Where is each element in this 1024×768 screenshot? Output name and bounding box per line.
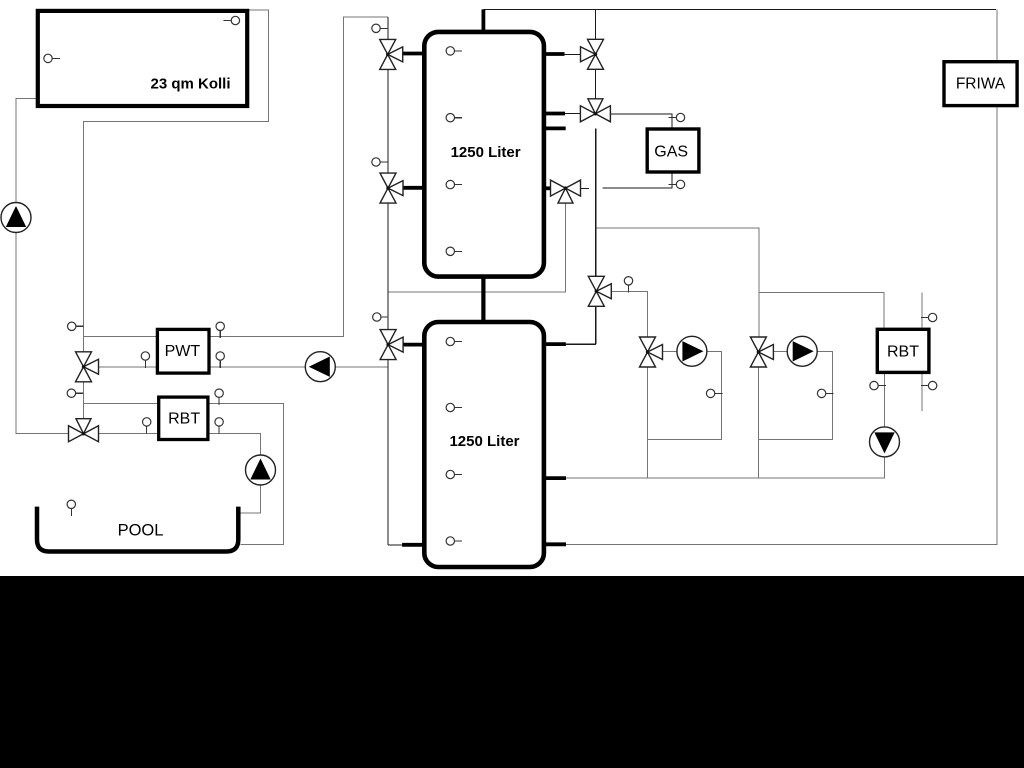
svg-text:RBT: RBT (168, 411, 200, 428)
svg-text:1250 Liter: 1250 Liter (451, 144, 521, 161)
svg-text:POOL: POOL (118, 521, 164, 539)
svg-text:RBT: RBT (887, 344, 919, 361)
svg-text:FRIWA: FRIWA (956, 76, 1006, 93)
svg-text:23 qm Kolli: 23 qm Kolli (150, 76, 230, 93)
svg-text:GAS: GAS (654, 143, 688, 160)
svg-text:PWT: PWT (165, 343, 201, 360)
svg-text:1250 Liter: 1250 Liter (449, 433, 519, 450)
